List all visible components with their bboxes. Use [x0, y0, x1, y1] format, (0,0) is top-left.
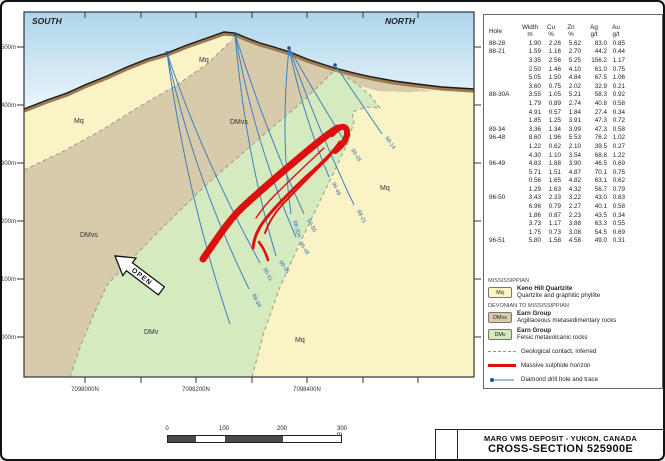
assay-row: 5.711.514.8770.10.75	[489, 168, 625, 177]
assay-row: 4.301.103.5468.81.22	[489, 151, 625, 160]
assay-row: 2.501.464.1061.00.75	[489, 65, 625, 74]
assay-row: 5.051.504.8467.51.06	[489, 73, 625, 82]
region-label-dmvs: DMvs	[80, 232, 98, 239]
section-title: CROSS-SECTION 525900E	[488, 443, 633, 455]
assay-row: 1.851.253.9147.30.72	[489, 116, 625, 125]
drill-collar	[233, 32, 237, 36]
legend-unit-desc: Felsic metavolcanic rocks	[517, 335, 588, 342]
assay-row: 1.860.872.2343.50.34	[489, 211, 625, 220]
assay-row: 1.291.634.3256.70.79	[489, 185, 625, 194]
assay-row: 89-343.361.343.9947.30.58	[489, 125, 625, 134]
south-label: SOUTH	[32, 16, 63, 26]
assay-row: 88-281.902.265.6283.00.85	[489, 39, 625, 48]
assay-row: 88-211.591.162.7044.20.44	[489, 48, 625, 57]
elevation-label: 1500m	[2, 45, 16, 51]
legend: MISSISSIPPIAN Mq Keno Hill Quartzite Qua…	[488, 278, 660, 383]
region-label-dmv: DMv	[144, 329, 159, 336]
legend-unit-mq: Mq Keno Hill Quartzite Quartzite and gra…	[488, 286, 660, 299]
assay-row: 88-30A3.551.055.2158.30.92	[489, 91, 625, 100]
assay-header-row: HoleWidthmCu%Zn%Agg/tAug/t	[489, 22, 625, 39]
legend-contact-item: Geological contact, inferred	[488, 348, 660, 355]
legend-drill-label: Diamond drill hole and trace	[521, 376, 598, 383]
legend-drill-item: Diamond drill hole and trace	[488, 376, 660, 383]
region-label-mq: Mq	[295, 337, 305, 344]
drill-collar	[333, 63, 337, 67]
legend-era-mississippian: MISSISSIPPIAN	[488, 278, 660, 284]
dmv-swatch: DMv	[488, 329, 512, 340]
mq-swatch: Mq	[488, 287, 512, 298]
assay-row: 96-503.432.333.2243.00.83	[489, 194, 625, 203]
drill-collar	[287, 46, 291, 50]
contact-line-symbol	[488, 351, 516, 352]
legend-unit-desc: Argillaceous metasedimentary rocks	[517, 318, 616, 325]
figure-canvas: 88-14 88-28 96-49 88-21 96-50 88-30A 96-…	[0, 0, 665, 461]
elevation-label: 1000m	[2, 335, 16, 341]
sulphide-line-symbol	[488, 364, 516, 367]
assay-row: 4.910.571.8427.40.34	[489, 108, 625, 117]
northing-label: 7098400N	[293, 387, 321, 393]
legend-sulphide-label: Massive sulphide horizon	[521, 362, 590, 369]
scale-label-200: 200	[277, 426, 287, 432]
assay-row: 3.352.565.25156.21.17	[489, 56, 625, 65]
assay-row: 1.750.733.0854.50.69	[489, 228, 625, 237]
elevation-label: 1300m	[2, 161, 16, 167]
drill-hole-symbol	[488, 377, 516, 383]
assay-row: 3.600.752.0232.90.21	[489, 82, 625, 91]
elevation-label: 1200m	[2, 219, 16, 225]
legend-unit-dmv: DMv Earn Group Felsic metavolcanic rocks	[488, 328, 660, 341]
drill-collar	[165, 51, 169, 55]
region-label-mq: Mq	[74, 118, 84, 125]
region-label-mq: Mq	[199, 57, 209, 64]
legend-era-devonian: DEVONIAN TO MISSISSIPPIAN	[488, 303, 660, 309]
assay-row: 6.960.792.2740.10.58	[489, 202, 625, 211]
legend-sulphide-item: Massive sulphide horizon	[488, 362, 660, 369]
legend-unit-desc: Quartzite and graphitic phyllite	[517, 293, 600, 300]
scale-label-0: 0	[165, 426, 168, 432]
assay-row: 96-488.601.965.5376.21.02	[489, 134, 625, 143]
title-block: MARG VMS DEPOSIT - YUKON, CANADA CROSS-S…	[435, 429, 664, 460]
region-label-dmvs: DMvs	[230, 119, 248, 126]
assay-row: 1.220.622.1039.50.27	[489, 142, 625, 151]
elevation-label: 1400m	[2, 103, 16, 109]
northing-label: 7098000N	[71, 387, 99, 393]
legend-contact-label: Geological contact, inferred	[521, 348, 596, 355]
assay-row: 0.561.654.8263.10.62	[489, 177, 625, 186]
assay-row: 3.731.173.8863.30.55	[489, 219, 625, 228]
region-label-mq: Mq	[380, 185, 390, 192]
title-block-cell	[436, 430, 458, 459]
deposit-title: MARG VMS DEPOSIT - YUKON, CANADA	[484, 434, 637, 443]
north-label: NORTH	[385, 16, 416, 26]
assay-row: 1.790.892.7440.80.58	[489, 99, 625, 108]
dmvs-swatch: DMvs	[488, 312, 512, 323]
scale-label-100: 100	[219, 426, 229, 432]
assay-row: 96-494.831.883.9046.50.69	[489, 159, 625, 168]
elevation-label: 1100m	[2, 277, 16, 283]
cross-section-plot: 88-14 88-28 96-49 88-21 96-50 88-30A 96-…	[2, 2, 482, 402]
assay-table: HoleWidthmCu%Zn%Agg/tAug/t88-281.902.265…	[489, 22, 625, 245]
scale-bar-body	[167, 435, 342, 443]
assay-row: 96-515.801.584.5849.00.31	[489, 237, 625, 246]
northing-label: 7098200N	[182, 387, 210, 393]
legend-unit-dmvs: DMvs Earn Group Argillaceous metasedimen…	[488, 311, 660, 324]
